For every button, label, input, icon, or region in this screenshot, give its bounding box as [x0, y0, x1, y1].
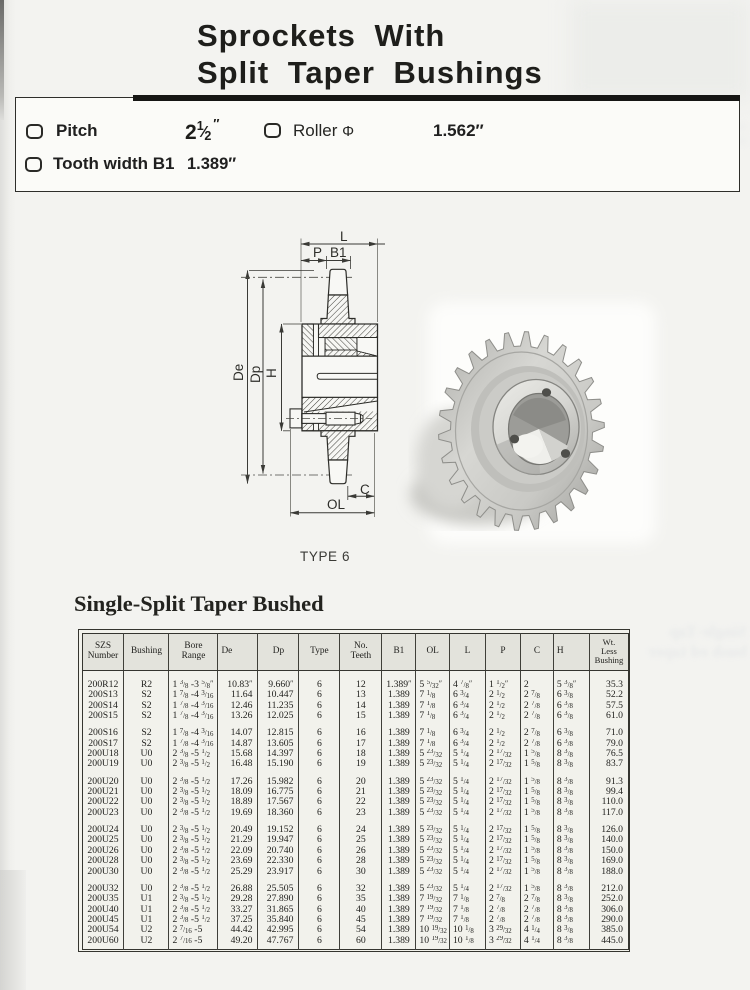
svg-text:OL: OL: [327, 497, 346, 512]
svg-text:TYPE 6: TYPE 6: [300, 549, 350, 564]
svg-text:C: C: [360, 482, 370, 497]
svg-text:B1: B1: [330, 245, 347, 260]
svg-text:L: L: [340, 229, 348, 244]
svg-text:P: P: [313, 245, 322, 260]
svg-text:Dp: Dp: [248, 366, 263, 383]
svg-text:H: H: [264, 368, 279, 378]
svg-text:De: De: [231, 364, 246, 381]
